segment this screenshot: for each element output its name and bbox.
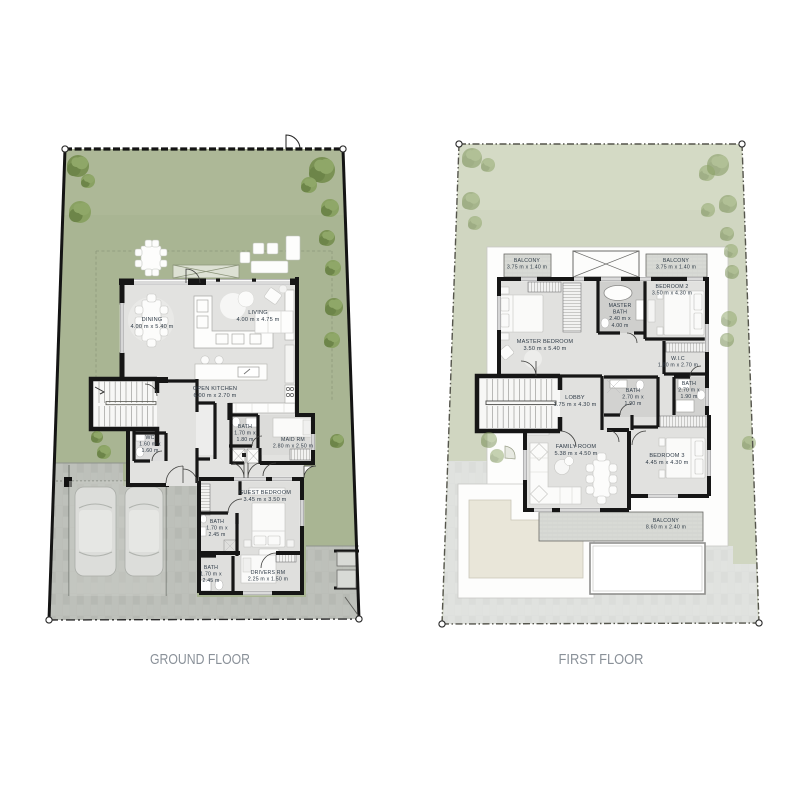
svg-text:BATH: BATH (682, 381, 696, 387)
svg-text:2.40 m x: 2.40 m x (609, 316, 631, 322)
svg-text:3.45 m x 3.50 m: 3.45 m x 3.50 m (243, 497, 286, 503)
svg-text:BATH: BATH (204, 565, 218, 571)
svg-text:3.50 m x 5.40 m: 3.50 m x 5.40 m (523, 346, 566, 352)
svg-text:2.25 m x 1.50 m: 2.25 m x 1.50 m (248, 576, 288, 582)
svg-text:BEDROOM 3: BEDROOM 3 (649, 453, 684, 459)
svg-text:LOBBY: LOBBY (565, 395, 585, 401)
svg-text:1.80 m x 2.70 m: 1.80 m x 2.70 m (658, 362, 698, 368)
svg-text:1.80 m: 1.80 m (236, 437, 253, 443)
svg-text:1.70 m x: 1.70 m x (234, 430, 256, 436)
svg-text:2.45 m: 2.45 m (208, 532, 225, 538)
svg-text:2.80 m x 2.50 m: 2.80 m x 2.50 m (273, 443, 313, 449)
svg-text:1.90 m: 1.90 m (680, 394, 697, 400)
svg-text:3.50 m x 4.30 m: 3.50 m x 4.30 m (652, 290, 692, 296)
svg-text:2.70 m x: 2.70 m x (622, 394, 644, 400)
svg-text:4.00 m: 4.00 m (611, 323, 628, 329)
svg-text:BATH: BATH (210, 519, 224, 525)
svg-text:BALCONY: BALCONY (514, 258, 541, 264)
svg-text:4.00 m x 4.75 m: 4.00 m x 4.75 m (236, 317, 279, 323)
svg-text:BATH: BATH (238, 424, 252, 430)
svg-text:4.00 m x 5.40 m: 4.00 m x 5.40 m (130, 324, 173, 330)
svg-text:1.90 m: 1.90 m (624, 401, 641, 407)
svg-text:DRIVERS RM: DRIVERS RM (251, 570, 286, 576)
svg-text:1.60 m: 1.60 m (141, 448, 158, 454)
svg-text:3.75 m x 1.40 m: 3.75 m x 1.40 m (507, 264, 547, 270)
svg-text:BATH: BATH (626, 388, 640, 394)
svg-text:BATH: BATH (613, 310, 627, 316)
svg-text:1.70 m x: 1.70 m x (200, 571, 222, 577)
svg-text:BEDROOM 2: BEDROOM 2 (656, 284, 689, 290)
svg-text:3.75 m x 1.40 m: 3.75 m x 1.40 m (656, 264, 696, 270)
svg-text:FAMILY ROOM: FAMILY ROOM (556, 444, 597, 450)
svg-text:1.75 m x 4.30 m: 1.75 m x 4.30 m (553, 402, 596, 408)
svg-text:4.45 m x 4.30 m: 4.45 m x 4.30 m (645, 460, 688, 466)
svg-text:MASTER: MASTER (609, 303, 632, 309)
svg-text:6.00 m x 2.70 m: 6.00 m x 2.70 m (193, 393, 236, 399)
svg-text:W.I.C: W.I.C (671, 356, 685, 362)
svg-text:1.60 m x: 1.60 m x (139, 441, 161, 447)
svg-text:GUEST BEDROOM: GUEST BEDROOM (239, 490, 291, 496)
svg-text:WC: WC (145, 435, 154, 441)
svg-text:FIRST FLOOR: FIRST FLOOR (559, 651, 644, 668)
svg-text:1.70 m x: 1.70 m x (206, 525, 228, 531)
svg-text:2.70 m x: 2.70 m x (678, 387, 700, 393)
svg-text:8.60 m x 2.40 m: 8.60 m x 2.40 m (646, 524, 686, 530)
svg-text:2.45 m: 2.45 m (202, 578, 219, 584)
svg-text:BALCONY: BALCONY (663, 258, 690, 264)
svg-text:DINING: DINING (142, 317, 163, 323)
svg-text:MAID RM: MAID RM (281, 437, 305, 443)
svg-text:5.38 m x 4.50 m: 5.38 m x 4.50 m (554, 451, 597, 457)
svg-text:LIVING: LIVING (248, 310, 268, 316)
svg-text:MASTER BEDROOM: MASTER BEDROOM (517, 339, 574, 345)
svg-text:BALCONY: BALCONY (653, 518, 680, 524)
svg-text:OPEN KITCHEN: OPEN KITCHEN (193, 386, 237, 392)
svg-text:GROUND FLOOR: GROUND FLOOR (150, 651, 250, 668)
